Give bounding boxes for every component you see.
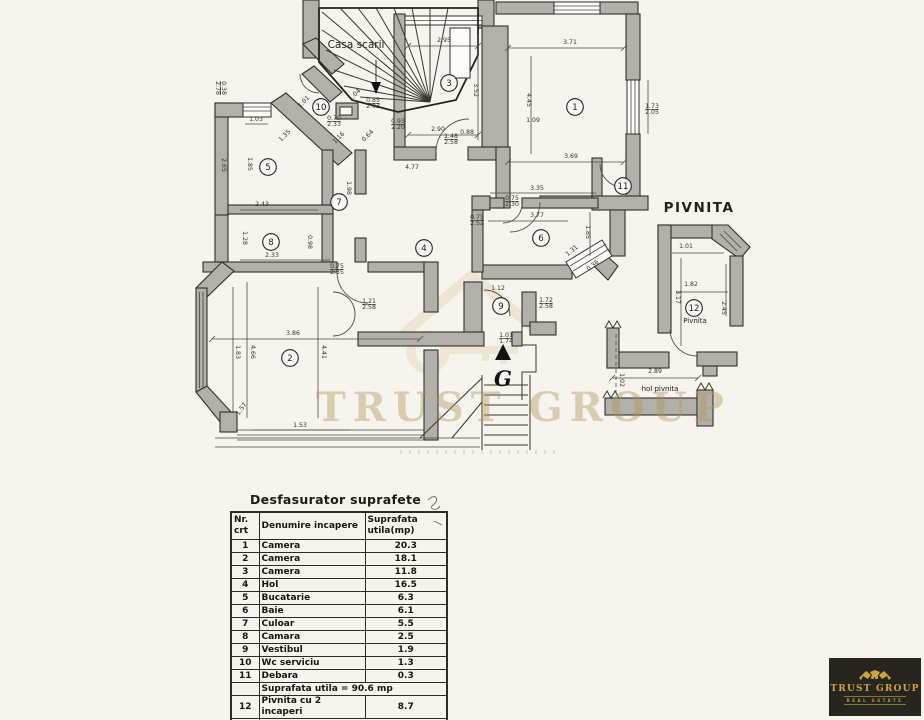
dimension-label: 1.98 <box>345 181 352 195</box>
room-number: 10 <box>316 103 327 113</box>
table-row: 2Camera18.1 <box>231 553 447 566</box>
dimension-label: 3.71 <box>563 39 577 46</box>
dimension-label: 0.702.33 <box>327 115 341 128</box>
logo-brand: TRUST GROUP <box>830 684 919 694</box>
dimension-label: 1.722.58 <box>539 297 553 310</box>
cell-nr: 12 <box>231 696 259 719</box>
dimension-label: 4.41 <box>320 345 327 359</box>
cell-area-value: 20.3 <box>365 540 447 553</box>
dimension-labels: 2.953.712.903.693.524.451.090.884.773.35… <box>214 37 727 429</box>
dimension-label: 3.86 <box>286 330 300 337</box>
room-number: 11 <box>618 182 629 192</box>
cell-room-name: Camera <box>259 553 365 566</box>
cell-room-name: Baie <box>259 605 365 618</box>
cell-nr: 3 <box>231 566 259 579</box>
dimension-label: 0.88 <box>460 129 474 136</box>
scanned-floorplan-sheet: G Casa scarii PIVNITA Pivnita hol pivnit… <box>0 0 924 720</box>
dimension-label: 1.12 <box>491 285 505 292</box>
cell-room-name: Camera <box>259 566 365 579</box>
casa-scarii-label: Casa scarii <box>328 39 385 51</box>
dimension-label: 1.35 <box>278 129 293 144</box>
dimension-label: 1.53 <box>293 422 307 429</box>
cell-nr: 4 <box>231 579 259 592</box>
table-row: 10Wc serviciu1.3 <box>231 657 447 670</box>
cell-area-value: 2.5 <box>365 631 447 644</box>
room-number: 2 <box>287 354 292 364</box>
dimension-label: 3.35 <box>530 185 544 192</box>
dimension-label: 2.95 <box>437 37 451 44</box>
cell-nr: 10 <box>231 657 259 670</box>
room-number: 7 <box>336 198 341 208</box>
table-row: 5Bucatarie6.3 <box>231 592 447 605</box>
dimension-label: 0.382.78 <box>214 81 227 95</box>
table-row: 11Debara0.3 <box>231 670 447 683</box>
dimension-label: 1.01 <box>297 95 312 110</box>
room-number: 6 <box>538 234 543 244</box>
dimension-label: 0.752.30 <box>505 195 519 208</box>
dimension-label: 1.57 <box>235 401 249 416</box>
dimension-label: 2.43 <box>255 201 269 208</box>
dimension-label: 0.932.20 <box>391 118 405 131</box>
dimension-label: 0.752.52 <box>470 214 484 227</box>
dimension-label: 1.82 <box>684 281 698 288</box>
cell-room-name: Wc serviciu <box>259 657 365 670</box>
trust-group-logo: TRUST GROUP REAL ESTATE <box>829 658 921 716</box>
hol-pivnita-label: hol pivnita <box>642 385 679 393</box>
cell-area-value: 18.1 <box>365 553 447 566</box>
cell-room-name: Camara <box>259 631 365 644</box>
dimension-label: 0.64 <box>361 129 376 144</box>
room-number: 3 <box>446 79 451 89</box>
table-row: 6Baie6.1 <box>231 605 447 618</box>
cell-room-name: Vestibul <box>259 644 365 657</box>
cell-area-value: 6.1 <box>365 605 447 618</box>
room-number: 9 <box>498 302 503 312</box>
room-number: 1 <box>572 103 577 113</box>
cell-nr: 9 <box>231 644 259 657</box>
dimension-label: 3.52 <box>472 83 479 97</box>
room-number: 5 <box>265 163 270 173</box>
area-table-section: Desfasurator suprafete Nr. crt Denumire … <box>230 492 448 720</box>
cell-area-value: 16.5 <box>365 579 447 592</box>
cell-room-name: Camera <box>259 540 365 553</box>
cell-area-value: 1.9 <box>365 644 447 657</box>
table-row: 3Camera11.8 <box>231 566 447 579</box>
dimension-label: 3.69 <box>564 153 578 160</box>
dimension-label: 1.02 <box>618 373 625 387</box>
dimension-label: 1.09 <box>526 117 540 124</box>
cell-room-name: Bucatarie <box>259 592 365 605</box>
dimension-label: 4.45 <box>525 93 532 107</box>
table-row: 12Pivnita cu 2 incaperi8.7 <box>231 696 447 719</box>
cell-nr: 7 <box>231 618 259 631</box>
room-number: 8 <box>268 238 273 248</box>
pivnita-title: PIVNITA <box>664 200 735 216</box>
cell-area-value: 1.3 <box>365 657 447 670</box>
subtotal-row-label: Suprafata utila = 90.6 mp <box>259 683 447 696</box>
dimension-label: 1.85 <box>246 157 253 171</box>
dimension-label: 3.17 <box>674 290 681 304</box>
table-row: 8Camara2.5 <box>231 631 447 644</box>
dimension-label: 2.65 <box>220 158 227 172</box>
dimension-label: 0.752.35 <box>330 263 344 276</box>
dimension-label: 1.83 <box>234 345 241 359</box>
table-row: 1Camera20.3 <box>231 540 447 553</box>
dimension-label: 1.28 <box>241 231 248 245</box>
cell-room-name: Debara <box>259 670 365 683</box>
cell-room-name: Hol <box>259 579 365 592</box>
cell-nr: 2 <box>231 553 259 566</box>
table-row: Suprafata utila = 90.6 mp <box>231 683 447 696</box>
handshake-icon <box>858 669 892 682</box>
compass-letter: G <box>494 366 512 391</box>
cell-nr: 8 <box>231 631 259 644</box>
dimension-label: 4.77 <box>405 164 419 171</box>
cell-nr: 11 <box>231 670 259 683</box>
table-row: 9Vestibul1.9 <box>231 644 447 657</box>
cell-nr: 5 <box>231 592 259 605</box>
col-header-area: Suprafata utila(mp) <box>365 512 447 540</box>
cell-area-value: 0.3 <box>365 670 447 683</box>
cell-nr: 1 <box>231 540 259 553</box>
dimension-label: 1.03 <box>249 116 263 123</box>
dimension-label: 1.732.05 <box>645 103 659 116</box>
dimension-label: 2.89 <box>648 368 662 375</box>
room-number: 4 <box>421 244 426 254</box>
area-table: Nr. crt Denumire incapere Suprafata util… <box>230 511 448 720</box>
dimension-label: 0.98 <box>306 235 313 249</box>
dimension-label: 1.011.74 <box>499 332 513 345</box>
floor-plan-svg: G Casa scarii PIVNITA Pivnita hol pivnit… <box>0 0 924 720</box>
cell-area-value: 6.3 <box>365 592 447 605</box>
dimension-label: 2.90 <box>431 126 445 133</box>
pivnita-room-label: Pivnita <box>683 317 707 325</box>
table-header-row: Nr. crt Denumire incapere Suprafata util… <box>231 512 447 540</box>
col-header-nr: Nr. crt <box>231 512 259 540</box>
table-row: 7Culoar5.5 <box>231 618 447 631</box>
table-row: 4Hol16.5 <box>231 579 447 592</box>
cell-room-name: Pivnita cu 2 incaperi <box>259 696 365 719</box>
logo-tagline: REAL ESTATE <box>844 696 907 705</box>
room-number: 12 <box>689 304 700 314</box>
col-header-name: Denumire incapere <box>259 512 365 540</box>
dimension-label: 1.482.58 <box>444 133 458 146</box>
dimension-label: 2.45 <box>720 301 727 315</box>
cell-area-value: 5.5 <box>365 618 447 631</box>
dimension-label: 2.33 <box>265 252 279 259</box>
cell-room-name: Culoar <box>259 618 365 631</box>
dimension-label: 1.85 <box>584 225 591 239</box>
table-cell <box>231 683 259 696</box>
dimension-label: 3.77 <box>530 212 544 219</box>
cell-area-value: 8.7 <box>365 696 447 719</box>
dimension-label: 1.212.58 <box>362 298 376 311</box>
dimension-label: 0.852.03 <box>366 97 380 110</box>
cell-nr: 6 <box>231 605 259 618</box>
dimension-label: 4.66 <box>249 345 256 359</box>
table-title: Desfasurator suprafete <box>250 492 448 507</box>
cell-area-value: 11.8 <box>365 566 447 579</box>
dimension-label: 1.01 <box>679 243 693 250</box>
